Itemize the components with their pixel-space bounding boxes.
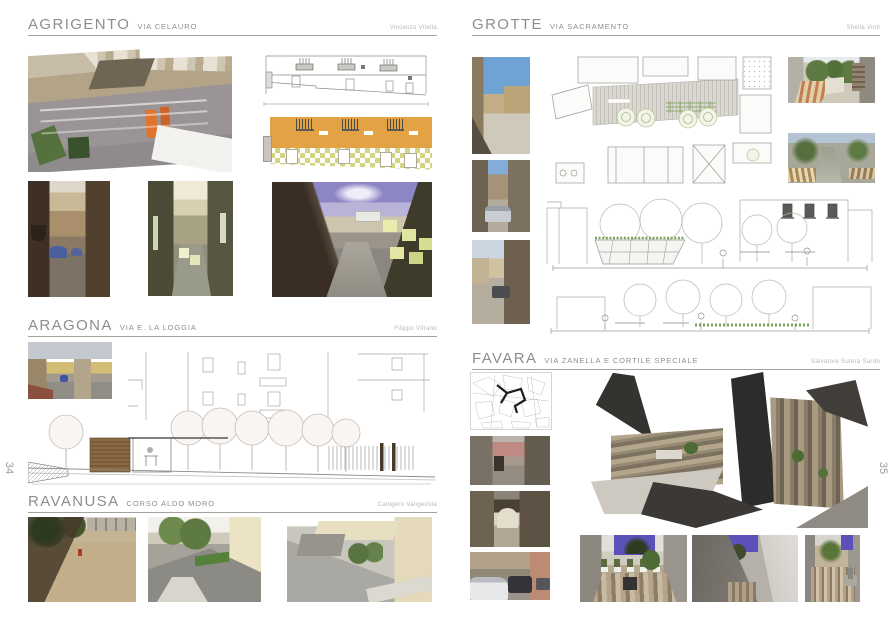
building [472,258,489,283]
striped-paving [788,168,816,182]
figure-favara-route-map [470,372,552,430]
green-planter [67,137,90,159]
arch-opening [497,508,518,528]
elevation-drawing [258,48,432,108]
window [319,131,328,135]
photo-edge [139,45,232,58]
section-author: Vincenzo Vitella [390,25,437,31]
roof-shadow [88,58,154,90]
figure-favara-alley-photo-1 [470,436,550,485]
dark-bench-cube [623,577,637,590]
gray-wall [296,534,344,556]
door [380,152,392,167]
cloud [333,183,384,204]
figure-favara-narrow-render [805,535,860,602]
section-header-grotte: GROTTE VIA SACRAMENTO Sheila Vinti [472,16,880,36]
window [364,131,373,135]
section-title: ARAGONA [28,317,113,334]
balcony-railing [342,119,359,131]
blue-umbrella [71,248,82,256]
pilaster [263,136,272,162]
white-car [470,577,508,600]
dark-slab [731,372,777,508]
window [409,131,418,135]
building-strip [87,518,136,532]
photo-rotated-layer [28,45,232,172]
figure-favara-courtyard-render [580,535,687,602]
section-title: RAVANUSA [28,493,120,510]
section-author: Sheila Vinti [846,25,880,31]
door [404,153,416,168]
figure-grotte-street-photo-3 [472,240,530,324]
dark-car [492,286,509,298]
figure-grotte-render-2 [788,133,875,183]
tree [790,135,821,167]
figure-favara-passage-render [692,535,798,602]
figure-grotte-street-photo-1 [472,57,530,154]
balcony [355,211,381,222]
section-header-ravanusa: RAVANUSA CORSO ALDO MORO Calogero Vangel… [28,493,437,513]
awning [31,225,46,241]
figure-favara-arch-photo [470,491,550,547]
figure-agrigento-alley-photo [28,181,110,297]
window-slit [153,216,158,251]
section-author: Filippo Vitrano [394,326,437,332]
section-subtitle: VIA ZANELLA E CORTILE SPECIALE [544,356,698,365]
green-planter [30,124,67,166]
light-path [366,575,432,602]
section-subtitle: CORSO ALDO MORO [127,499,216,508]
dark-car [536,578,550,590]
building [504,86,530,113]
figure-grotte-section-2 [545,279,875,335]
section-subtitle: VIA CELAURO [137,22,197,31]
figure-ravanusa-square-photo [28,517,136,602]
railing-lines [40,99,207,111]
section-drawing [545,194,875,274]
section-header-aragona: ARAGONA VIA E. LA LOGGIA Filippo Vitrano [28,317,437,337]
figure-grotte-street-photo-2 [472,160,530,232]
green-tree [818,538,843,565]
figure-aragona-street-photo [28,342,112,399]
red-figure [78,549,82,556]
plant [792,450,804,462]
section-subtitle: VIA E. LA LOGGIA [120,323,197,332]
section-header-agrigento: AGRIGENTO VIA CELAURO Vincenzo Vitella [28,16,437,36]
dark-tree [28,517,68,549]
page-number-right: 35 [877,457,889,479]
glowing-cubes [383,220,397,232]
pale-cubes [179,248,189,258]
figure-agrigento-alley-render-wide [272,182,432,297]
section-title: FAVARA [472,350,537,367]
stone-wall [852,63,864,92]
blue-car [60,375,68,382]
blue-umbrella [49,246,67,258]
figure-grotte-section-1 [545,194,875,274]
plan-drawing [548,55,775,188]
balcony-railing [387,119,404,131]
figure-agrigento-coloured-elevation [258,112,432,172]
figure-favara-cars-photo [470,552,550,600]
white-path [152,125,232,172]
plant [684,442,698,454]
figure-statue [848,567,853,579]
balcony-railing [296,119,313,131]
doorway [494,456,504,472]
trees [348,541,383,567]
silver-car [485,206,512,222]
door [338,149,350,164]
figure-ravanusa-aerial-render [287,517,432,602]
striped-paving [849,168,875,179]
door [286,149,298,164]
figure-agrigento-aerial-photo [28,45,232,172]
red-sidewalk [28,384,53,399]
section-author: Calogero Vangelista [378,502,437,508]
street-floor [326,242,387,297]
section-drawing [545,279,875,335]
dark-plane [592,372,662,441]
window-slit [220,213,226,243]
tree [844,137,872,164]
figure-grotte-render-1 [788,57,875,103]
figure-favara-abstract-collage [556,372,875,530]
section-header-favara: FAVARA VIA ZANELLA E CORTILE SPECIALE Sa… [472,350,880,370]
figure-grotte-paving-plan [548,55,775,188]
page-number-left: 34 [3,457,15,479]
bench [656,450,682,459]
section-author: Salvatore Sutera Sardo [811,359,880,365]
ramp [825,77,844,94]
figure-ravanusa-street-render [148,517,261,602]
green-tree [642,550,660,570]
striped-floor [728,582,756,602]
figure-agrigento-alley-render [148,181,233,296]
book-spread: AGRIGENTO VIA CELAURO Vincenzo Vitella [0,0,895,630]
section-subtitle: VIA SACRAMENTO [550,22,629,31]
dark-car [508,576,532,593]
map-sketch [471,373,551,429]
figure-agrigento-line-elevation [258,48,432,108]
section-title: AGRIGENTO [28,16,130,33]
section-title: GROTTE [472,16,543,33]
plant [818,468,828,478]
